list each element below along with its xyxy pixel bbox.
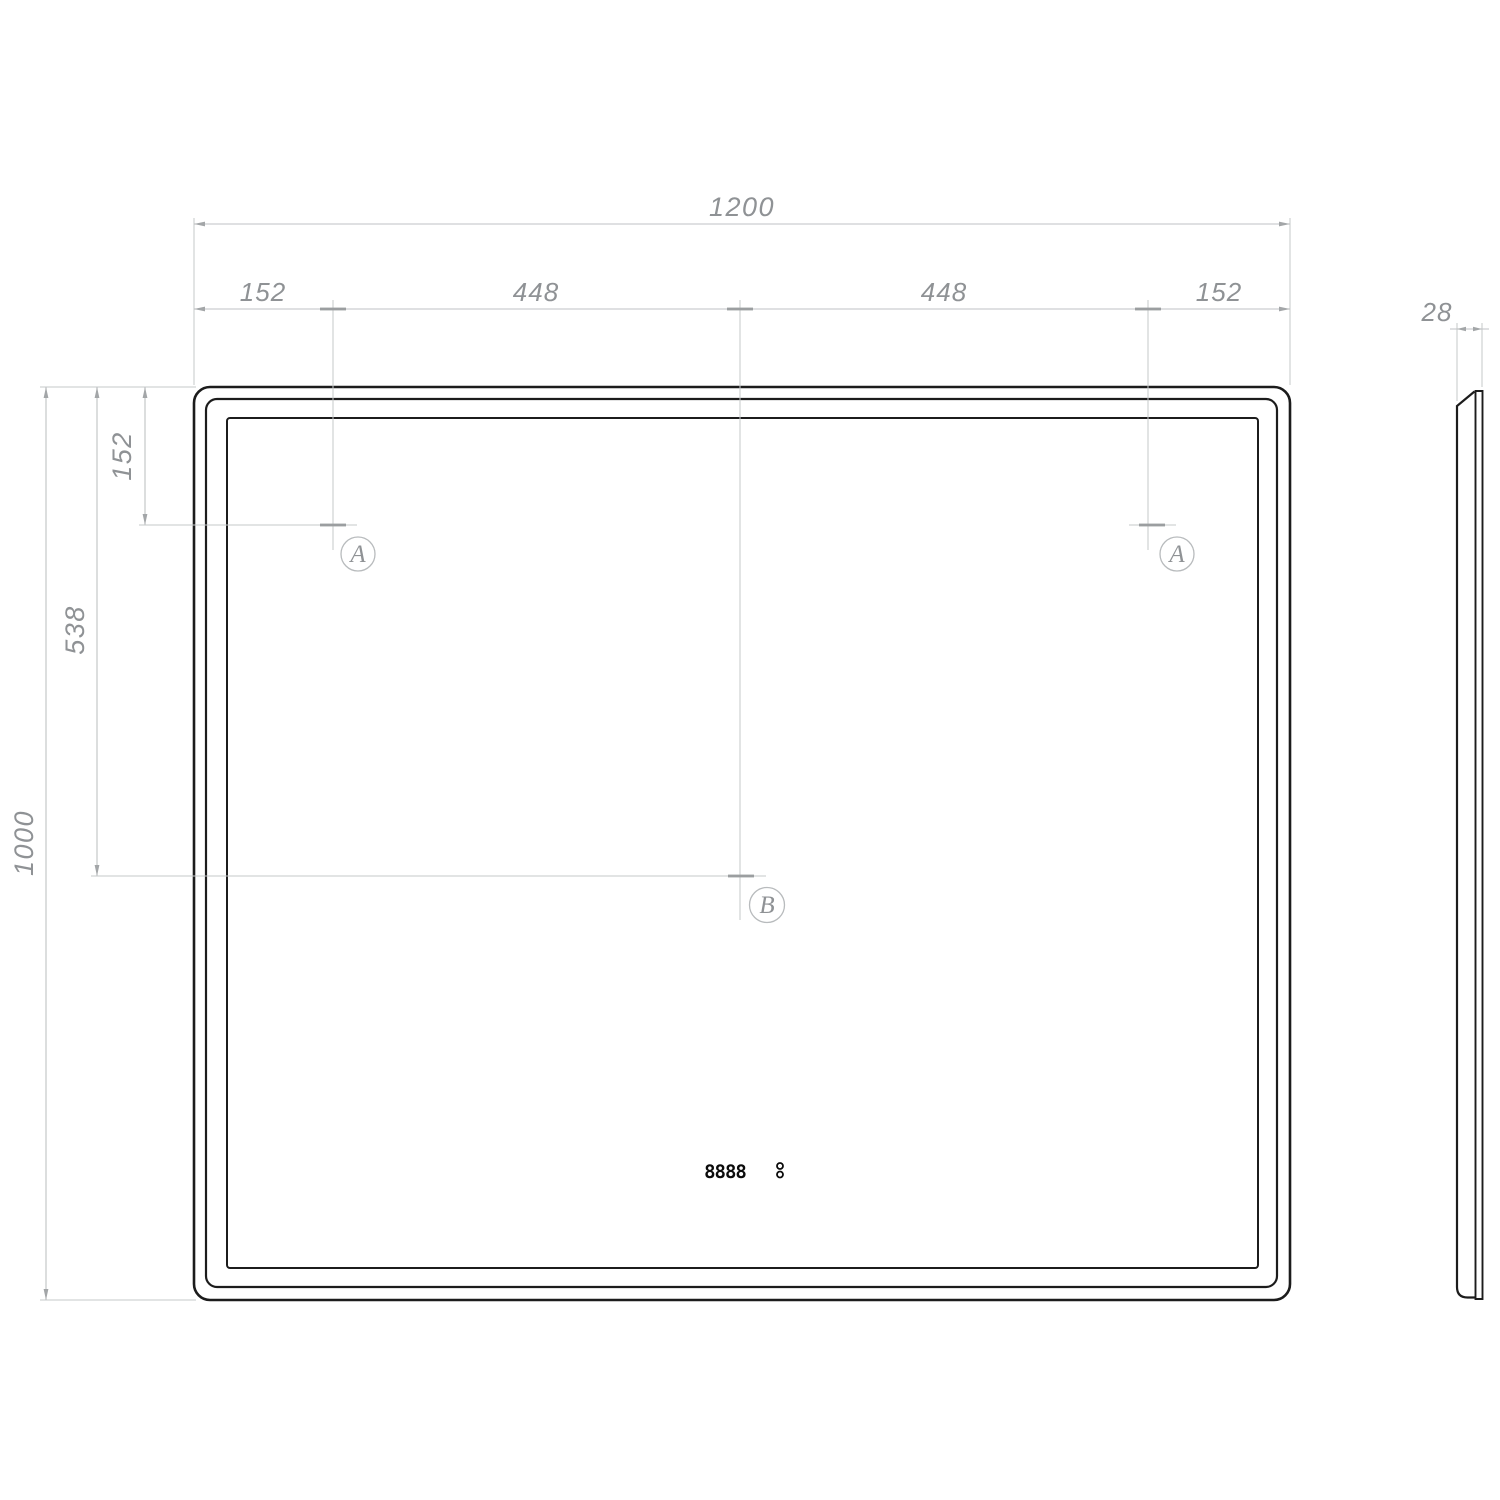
side-view: 28 — [1421, 297, 1489, 1299]
led-zone-outline — [227, 418, 1258, 1268]
arrow-down-icon — [143, 514, 148, 525]
sensor-dot-top-icon — [777, 1163, 783, 1169]
tick-mark — [727, 308, 753, 311]
arrow-left-icon — [1457, 327, 1466, 331]
arrow-right-icon — [1279, 307, 1290, 312]
mount-point-label-a: A — [1167, 541, 1185, 568]
center-mark — [728, 875, 754, 878]
sensor-dot-bottom-icon — [777, 1172, 783, 1178]
center-mark — [320, 524, 346, 527]
front-view: 8888 — [194, 387, 1290, 1300]
arrow-down-icon — [44, 1289, 49, 1300]
tick-mark — [1135, 308, 1161, 311]
dimension-label-overall-height: 1000 — [9, 810, 39, 876]
arrow-right-icon — [1279, 222, 1290, 227]
technical-drawing: 8888 1200 152 448 448 152 1000 — [0, 0, 1500, 1500]
dimension-overall-width: 1200 — [194, 192, 1290, 385]
mount-point-label-a: A — [348, 541, 366, 568]
center-mark — [1139, 524, 1165, 527]
dimension-label-segment-2: 448 — [513, 277, 559, 307]
mount-point-label-b: B — [759, 892, 774, 919]
arrow-down-icon — [95, 865, 100, 876]
dimension-label-segment-3: 448 — [921, 277, 967, 307]
mount-point-a-left: A — [139, 524, 375, 571]
arrow-left-icon — [194, 222, 205, 227]
arrow-up-icon — [95, 387, 100, 398]
side-profile-body — [1457, 392, 1476, 1298]
mirror-mid-frame — [206, 399, 1277, 1287]
dimension-width-segments: 152 448 448 152 — [194, 277, 1290, 920]
arrow-up-icon — [44, 387, 49, 398]
tick-mark — [320, 308, 346, 311]
side-profile-back-panel — [1476, 391, 1483, 1299]
dimension-label-overall-width: 1200 — [709, 192, 775, 222]
dimension-label-segment-4: 152 — [1196, 277, 1242, 307]
arrow-right-icon — [1473, 327, 1482, 331]
mount-point-a-right: A — [1129, 524, 1194, 571]
dimension-label-segment-1: 152 — [240, 277, 286, 307]
arrow-up-icon — [143, 387, 148, 398]
clock-display: 8888 — [704, 1161, 746, 1183]
dimension-label-mid: 538 — [60, 605, 90, 655]
arrow-left-icon — [194, 307, 205, 312]
dimension-label-depth: 28 — [1421, 297, 1453, 327]
dimension-left-group: 1000 538 152 — [9, 387, 196, 1300]
dimension-label-top-offset: 152 — [107, 431, 137, 481]
